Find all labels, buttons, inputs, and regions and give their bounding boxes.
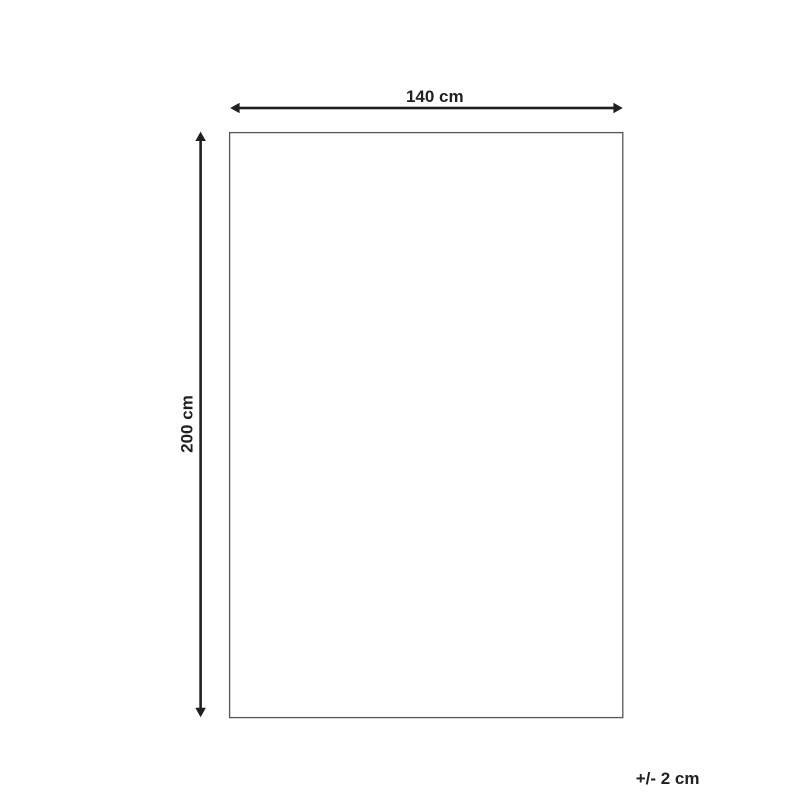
svg-text:200 cm: 200 cm (178, 395, 197, 453)
svg-text:+/- 2 cm: +/- 2 cm (636, 769, 700, 788)
svg-text:140 cm: 140 cm (406, 87, 464, 106)
